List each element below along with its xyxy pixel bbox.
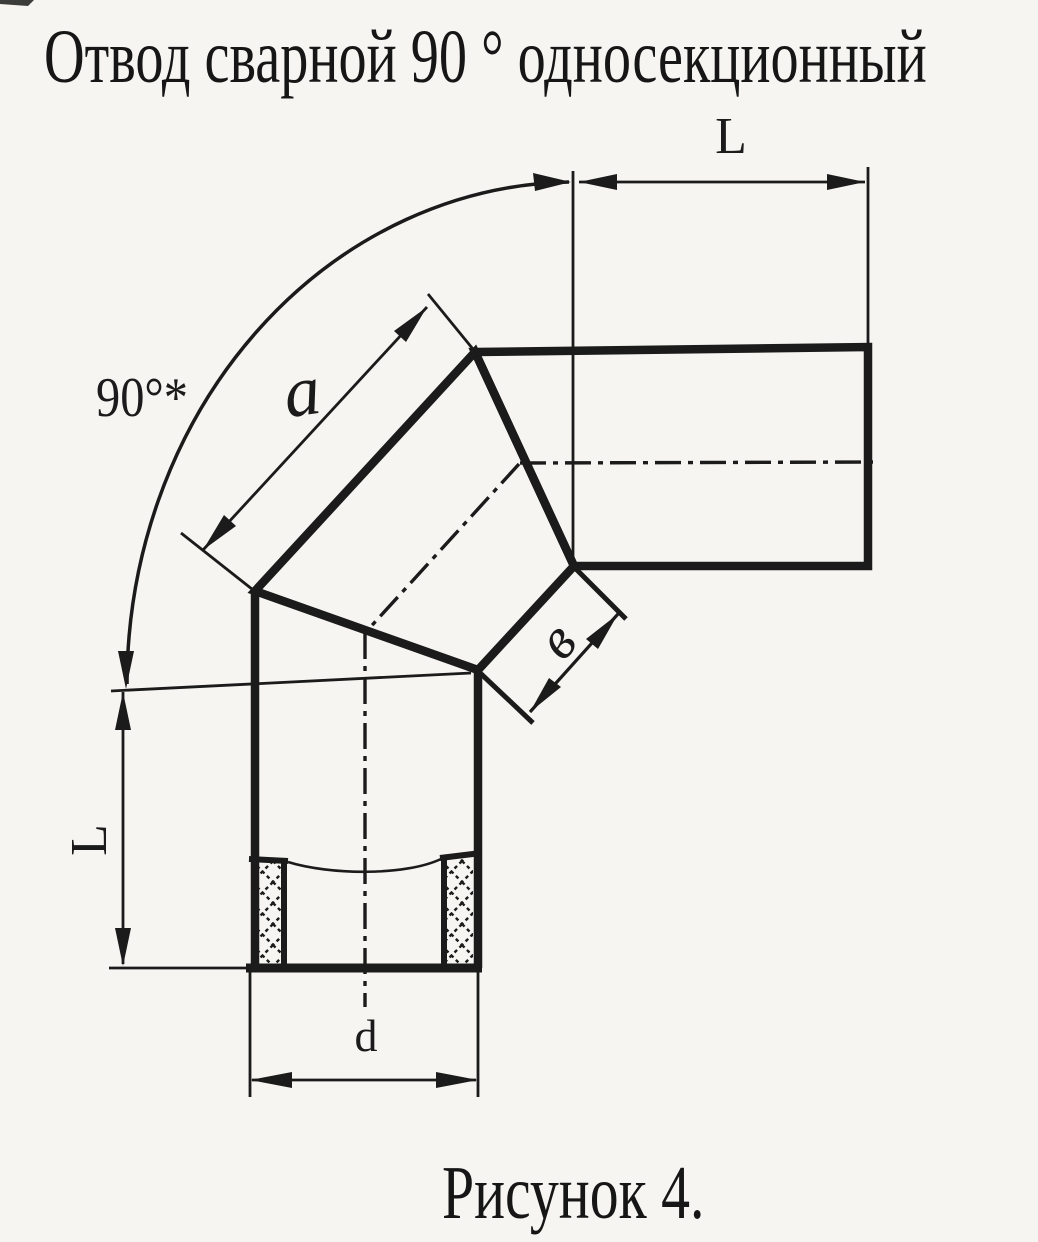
right-wall-hatch	[447, 859, 473, 964]
arrow-L-top-right	[827, 174, 865, 190]
dim-label-L-left: L	[61, 824, 118, 856]
elbow-diagram: L L a в d 90°*	[0, 0, 1038, 1242]
horizontal-pipe	[475, 347, 868, 566]
arrow-arc-bottom	[118, 651, 134, 689]
arrow-d-right	[436, 1072, 478, 1088]
figure-caption: Рисунок 4.	[442, 1152, 704, 1236]
arrowheads	[115, 173, 865, 1088]
diagonal-centreline	[365, 464, 519, 633]
dim-label-a: a	[278, 349, 325, 433]
ext-a-lower	[181, 533, 257, 593]
ext-v-upper	[574, 567, 626, 619]
arrow-arc-top	[533, 173, 571, 191]
dimension-lines	[123, 182, 865, 1080]
ext-a-upper	[428, 294, 477, 354]
drawing-sheet: Отвод сварной 90 ° односекционный	[0, 0, 1038, 1242]
dim-label-d: d	[355, 1010, 378, 1061]
ext-v-lower	[478, 671, 533, 723]
left-wall-hatch	[257, 862, 281, 964]
extension-lines	[109, 167, 868, 1097]
angle-arc	[127, 182, 569, 684]
arrow-L-top-left	[579, 174, 617, 190]
scan-artifact	[0, 0, 34, 6]
arrow-d-left	[250, 1072, 292, 1088]
angle-label: 90°*	[96, 367, 188, 429]
ext-left-upper	[111, 673, 471, 691]
dim-label-v: в	[523, 610, 589, 671]
dim-label-L-top: L	[715, 108, 747, 165]
arrow-L-left-up	[115, 692, 131, 730]
arrow-L-left-down	[115, 928, 131, 966]
